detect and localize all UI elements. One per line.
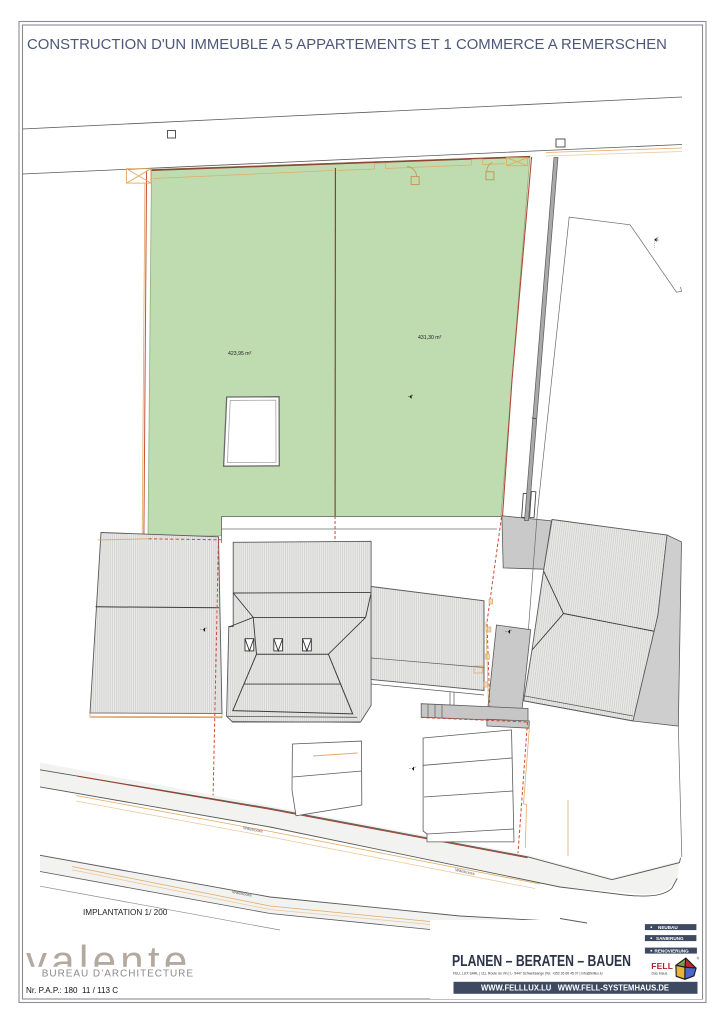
- svg-text:BUREAU D’ARCHITECTURE: BUREAU D’ARCHITECTURE: [42, 969, 194, 980]
- svg-text:CONSTRUCTION D'UN IMMEUBLE A 5: CONSTRUCTION D'UN IMMEUBLE A 5 APPARTEME…: [27, 37, 667, 53]
- svg-text:PLANEN – BERATEN – BAUEN: PLANEN – BERATEN – BAUEN: [452, 953, 631, 970]
- svg-text:SANIERUNG: SANIERUNG: [656, 936, 684, 941]
- svg-text:WWW.FELLLUX.LU WWW.FELL-SYST: WWW.FELLLUX.LU WWW.FELL-SYSTEMHAUS.DE: [481, 983, 669, 993]
- svg-text:FELL: FELL: [651, 961, 673, 971]
- svg-text:IMPLANTATION 1/ 200: IMPLANTATION 1/ 200: [83, 908, 168, 917]
- svg-text:431,30 m²: 431,30 m²: [418, 335, 442, 341]
- svg-text:Das Haus.: Das Haus.: [652, 972, 669, 976]
- svg-text:Nr. P.A.P.: 180 11 / 113 C: Nr. P.A.P.: 180 11 / 113 C: [26, 986, 118, 995]
- svg-text:FELL LUX SARL | 111, Route du: FELL LUX SARL | 111, Route du Vin | L- 5…: [453, 972, 603, 976]
- svg-text:423,95 m²: 423,95 m²: [228, 351, 252, 357]
- svg-text:NEUBAU: NEUBAU: [658, 925, 678, 930]
- svg-text:RENOVIERUNG: RENOVIERUNG: [655, 949, 690, 954]
